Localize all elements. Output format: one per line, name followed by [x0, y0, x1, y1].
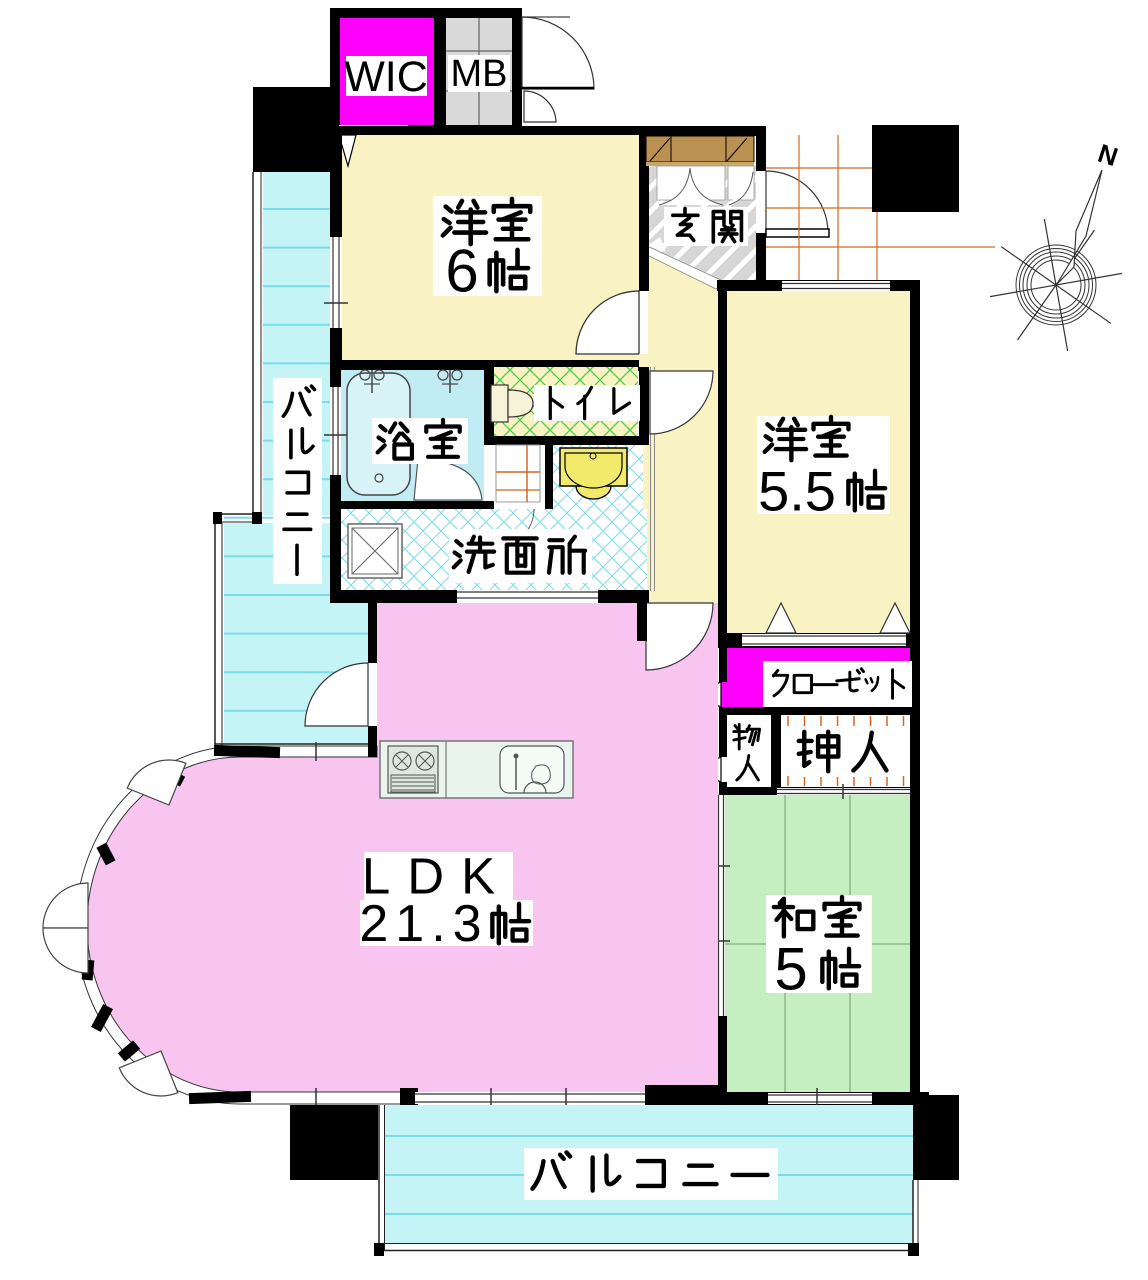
svg-text:5: 5	[774, 936, 807, 1003]
svg-text:5.5: 5.5	[758, 460, 836, 523]
svg-text:6: 6	[445, 238, 478, 305]
svg-text:WIC: WIC	[344, 53, 428, 101]
svg-text:MB: MB	[451, 53, 508, 95]
svg-text:21.3: 21.3	[359, 895, 488, 953]
